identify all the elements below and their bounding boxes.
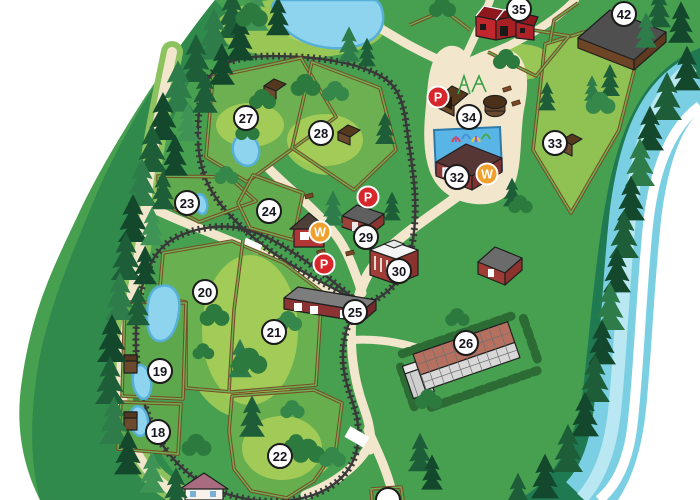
map-marker-20[interactable]: 20	[192, 279, 218, 305]
map-marker-19-label: 19	[153, 364, 167, 379]
map-marker-32[interactable]: 32	[444, 164, 470, 190]
map-marker-24-label: 24	[262, 204, 276, 219]
round-hut-34	[484, 96, 507, 117]
map-marker-21-label: 21	[267, 325, 281, 340]
map-marker-34[interactable]: 34	[456, 104, 482, 130]
map-marker-28[interactable]: 28	[308, 120, 334, 146]
shed	[124, 355, 137, 373]
parking-marker-3-label: P	[320, 257, 328, 271]
parking-marker-3[interactable]: P	[313, 253, 336, 276]
map-marker-27[interactable]: 27	[233, 105, 259, 131]
map-marker-19[interactable]: 19	[147, 358, 173, 384]
map-marker-28-label: 28	[314, 126, 328, 141]
map-marker-35-label: 35	[512, 2, 526, 17]
map-marker-18[interactable]: 18	[145, 419, 171, 445]
map-marker-26-label: 26	[459, 336, 473, 351]
map-marker-34-label: 34	[462, 110, 476, 125]
water-marker-1[interactable]: W	[476, 163, 499, 186]
map-marker-29-label: 29	[359, 230, 373, 245]
water-marker-2-label: W	[314, 225, 326, 239]
map-marker-30-label: 30	[392, 264, 406, 279]
map-marker-27-label: 27	[239, 111, 253, 126]
park-map: 181920212223242526272829303233343542PPPW…	[0, 0, 700, 500]
map-marker-22[interactable]: 22	[267, 443, 293, 469]
water-marker-2[interactable]: W	[309, 221, 332, 244]
map-marker-32-label: 32	[450, 170, 464, 185]
map-marker-25-label: 25	[348, 305, 362, 320]
map-marker-21[interactable]: 21	[261, 319, 287, 345]
water-marker-1-label: W	[481, 167, 493, 181]
parking-marker-1-label: P	[434, 90, 442, 104]
map-marker-23-label: 23	[180, 196, 194, 211]
map-marker-42[interactable]: 42	[611, 1, 637, 27]
map-marker-24[interactable]: 24	[256, 198, 282, 224]
parking-marker-2-label: P	[364, 190, 372, 204]
shed	[124, 412, 137, 430]
map-marker-33[interactable]: 33	[542, 130, 568, 156]
map-illustration	[0, 0, 700, 500]
parking-marker-1[interactable]: P	[427, 86, 450, 109]
map-marker-20-label: 20	[198, 285, 212, 300]
map-marker-18-label: 18	[151, 425, 165, 440]
map-marker-22-label: 22	[273, 449, 287, 464]
map-marker-42-label: 42	[617, 7, 631, 22]
map-marker-25[interactable]: 25	[342, 299, 368, 325]
map-marker-29[interactable]: 29	[353, 224, 379, 250]
parking-marker-2[interactable]: P	[357, 186, 380, 209]
map-marker-33-label: 33	[548, 136, 562, 151]
map-marker-23[interactable]: 23	[174, 190, 200, 216]
map-marker-26[interactable]: 26	[453, 330, 479, 356]
map-marker-30[interactable]: 30	[386, 258, 412, 284]
